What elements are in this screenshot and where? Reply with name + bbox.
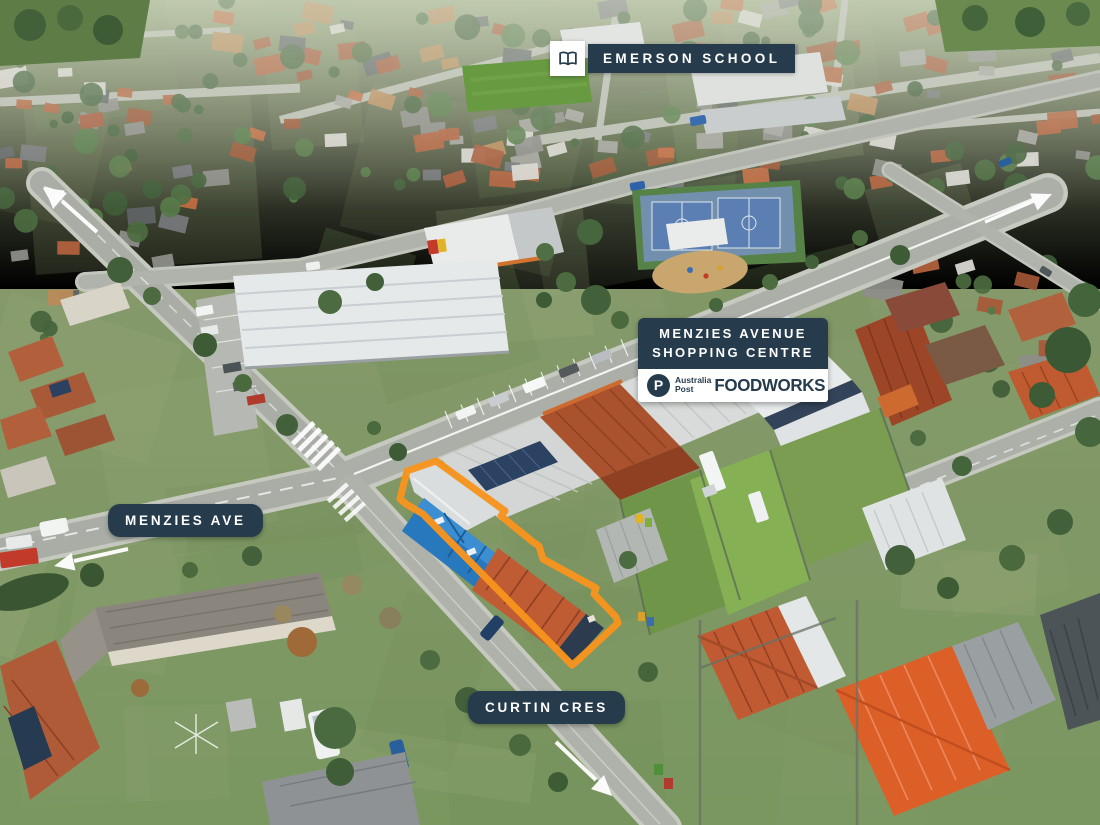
australia-post-logo: P Australia Post bbox=[647, 374, 711, 397]
foodworks-wordmark: FOODWORKS bbox=[715, 375, 826, 396]
street-label-menzies-ave: MENZIES AVE bbox=[108, 504, 263, 537]
aerial-photo-scene: EMERSON SCHOOL MENZIES AVENUE SHOPPING C… bbox=[0, 0, 1100, 825]
tenant-logos: P Australia Post FOODWORKS bbox=[638, 369, 828, 402]
open-book-icon bbox=[550, 41, 585, 76]
shopping-centre-line2: SHOPPING CENTRE bbox=[642, 344, 824, 363]
shopping-centre-line1: MENZIES AVENUE bbox=[642, 325, 824, 344]
street-label-curtin-cres: CURTIN CRES bbox=[468, 691, 625, 724]
poi-label-emerson-school: EMERSON SCHOOL bbox=[550, 41, 795, 76]
australia-post-wordmark: Australia Post bbox=[675, 376, 711, 395]
school-label: EMERSON SCHOOL bbox=[588, 44, 795, 73]
australia-post-icon: P bbox=[647, 374, 670, 397]
poi-label-shopping-centre: MENZIES AVENUE SHOPPING CENTRE P Austral… bbox=[638, 318, 828, 402]
shopping-centre-title: MENZIES AVENUE SHOPPING CENTRE bbox=[638, 318, 828, 369]
